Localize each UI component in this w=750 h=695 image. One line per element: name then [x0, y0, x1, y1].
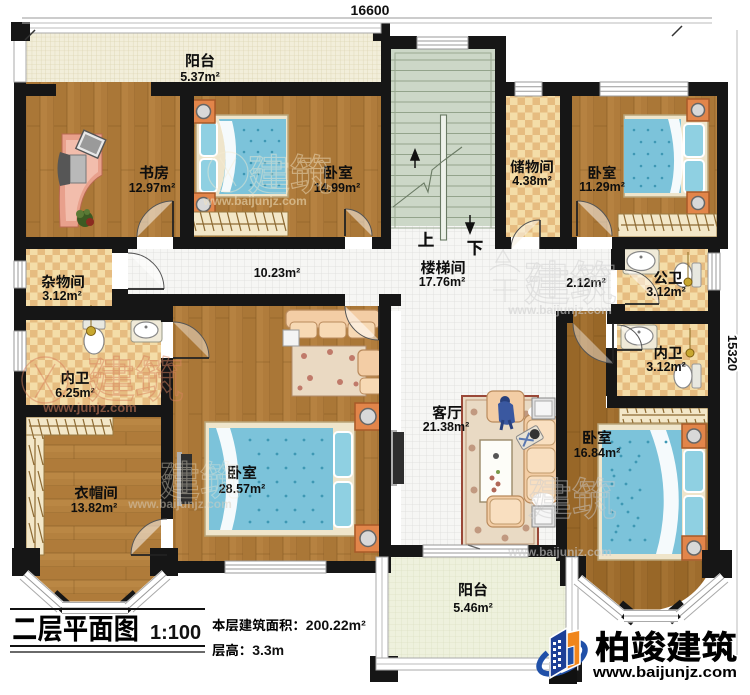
svg-text:www.baijunjz.com: www.baijunjz.com: [592, 664, 737, 681]
svg-text:13.82m²: 13.82m²: [71, 501, 118, 515]
svg-text:www.baijunjz.com: www.baijunjz.com: [202, 194, 307, 208]
svg-text:200.22m²: 200.22m²: [306, 617, 366, 633]
svg-text:15320: 15320: [725, 335, 740, 371]
svg-text:www.baijunjz.com: www.baijunjz.com: [127, 497, 232, 511]
svg-text:3.12m²: 3.12m²: [42, 289, 82, 303]
svg-text:www.baijunjz.com: www.baijunjz.com: [507, 545, 612, 559]
svg-text:4.38m²: 4.38m²: [512, 174, 552, 188]
svg-text:5.37m²: 5.37m²: [180, 70, 220, 84]
svg-text:www.junjz.com: www.junjz.com: [42, 400, 136, 415]
svg-text:12.97m²: 12.97m²: [129, 181, 176, 195]
svg-text:3.3m: 3.3m: [252, 642, 284, 658]
svg-text:1:100: 1:100: [150, 622, 201, 644]
svg-text:21.38m²: 21.38m²: [423, 420, 470, 434]
svg-text:11.29m²: 11.29m²: [579, 180, 625, 194]
svg-text:16.84m²: 16.84m²: [574, 446, 621, 460]
svg-text:3.12m²: 3.12m²: [646, 285, 686, 299]
svg-text:16600: 16600: [351, 2, 390, 18]
svg-text:10.23m²: 10.23m²: [254, 266, 301, 280]
svg-text:5.46m²: 5.46m²: [453, 601, 493, 615]
svg-text:www.baijunjz.com: www.baijunjz.com: [507, 303, 612, 317]
svg-text:3.12m²: 3.12m²: [646, 360, 686, 374]
svg-text:17.76m²: 17.76m²: [419, 275, 466, 289]
